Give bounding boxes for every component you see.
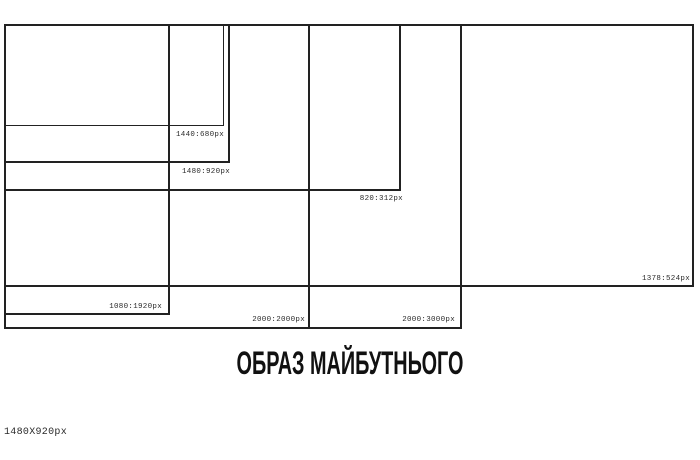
frame-label-1080x1920: 1080:1920px — [109, 303, 162, 311]
page-title: ОБРАЗ МАЙБУТНЬОГО — [133, 347, 567, 379]
frame-label-820x312: 820:312px — [360, 195, 403, 203]
frame-label-1480x920: 1480:920px — [182, 168, 230, 176]
frame-label-1378x524: 1378:524px — [642, 275, 690, 283]
canvas-size-label: 1480X920px — [4, 427, 67, 439]
design-canvas: 1440:680px 1480:920px 820:312px 1080:192… — [0, 0, 700, 460]
frame-1440x680 — [4, 24, 224, 126]
frame-label-1440x680: 1440:680px — [176, 131, 224, 139]
frame-label-2000x2000: 2000:2000px — [252, 316, 305, 324]
frame-label-2000x3000: 2000:3000px — [402, 316, 455, 324]
